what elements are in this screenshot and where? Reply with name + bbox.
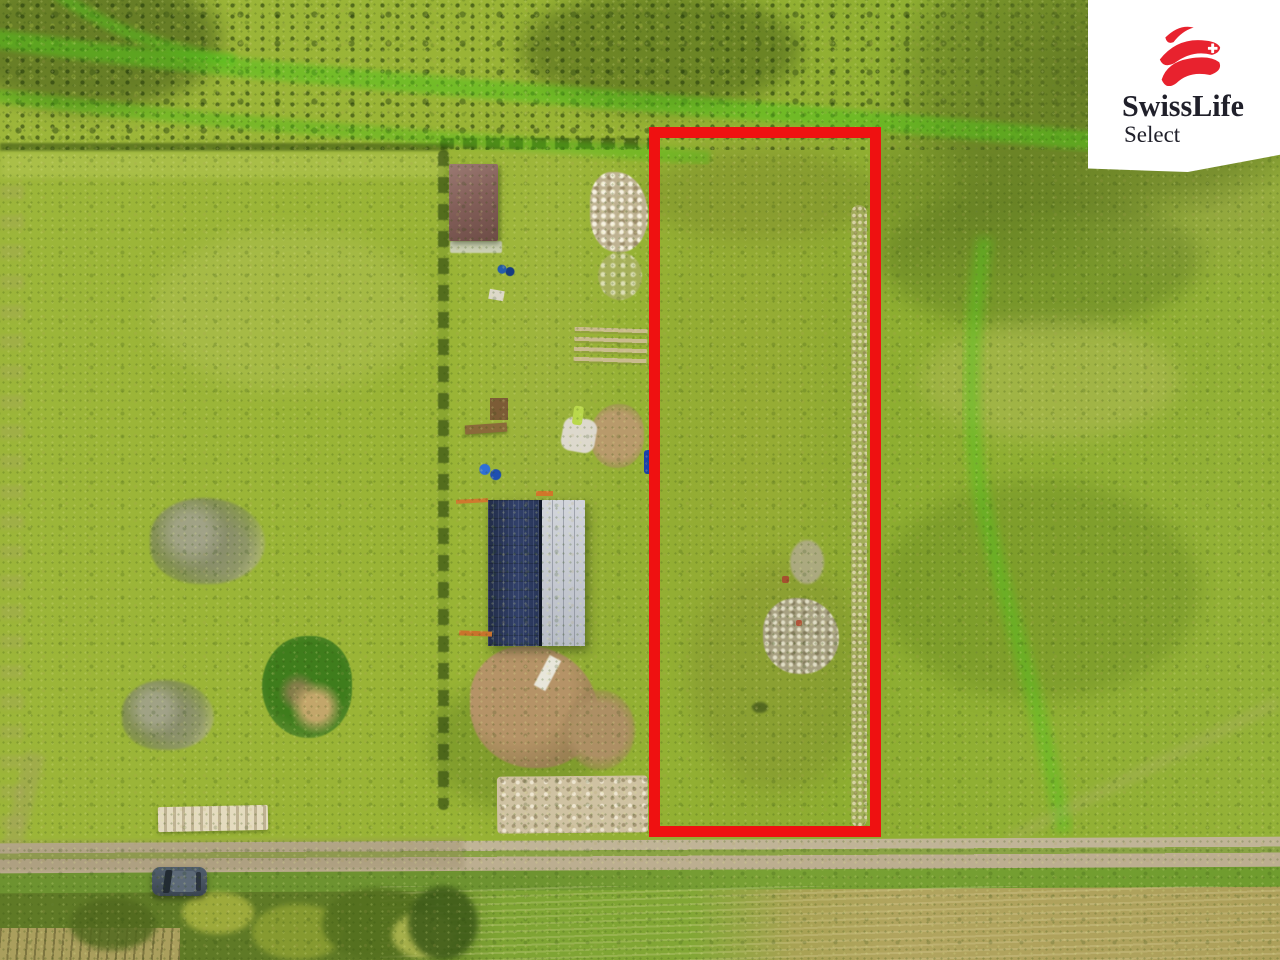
plank-stack [158,805,268,832]
field-bush [70,898,156,950]
faint-left-trail [0,185,24,835]
subbrand-wordmark: Select [1124,122,1180,148]
dry-scrub-patch [150,498,265,584]
rubble-scatter [598,252,642,300]
swisslife-select-watermark: SwissLife Select [1088,0,1280,172]
barn-roof-ridge [539,500,542,646]
parked-car [152,867,207,896]
car-rear-window [196,872,201,891]
dry-scrub-patch [122,680,214,750]
gravel-road-worn-section [0,839,464,871]
lumber-planks [573,327,647,368]
bare-earth-area [565,690,635,770]
grass-tonal-blotch [880,480,1200,700]
highlighted-parcel-outline [649,127,881,837]
wood-structure [490,398,508,420]
field-bush [182,892,254,934]
hedge-line [0,143,448,151]
green-bush [262,636,352,738]
orange-pole [536,491,553,496]
barn-roof-light-half [541,500,585,646]
grass-tonal-blotch [150,230,430,390]
aerial-photo-canvas: SwissLife Select [0,0,1280,960]
car-roof [170,871,196,892]
field-mowing-striations [380,886,1280,960]
two-tone-roof-barn [488,500,585,646]
swisslife-swoosh-icon [1148,22,1232,86]
shed-concrete-apron [450,241,502,253]
barn-roof-dark-half [488,500,541,646]
brand-wordmark: SwissLife [1122,88,1268,124]
garden-left-hedge [438,150,449,810]
dirt-patch [590,404,644,468]
mown-strip [0,152,445,178]
field-tree-patch [408,886,478,960]
blue-containers [477,461,503,482]
blue-containers [495,262,515,278]
brown-roof-shed [449,164,498,241]
garden-top-shrub-row [440,138,655,149]
sand-patch [497,775,648,833]
